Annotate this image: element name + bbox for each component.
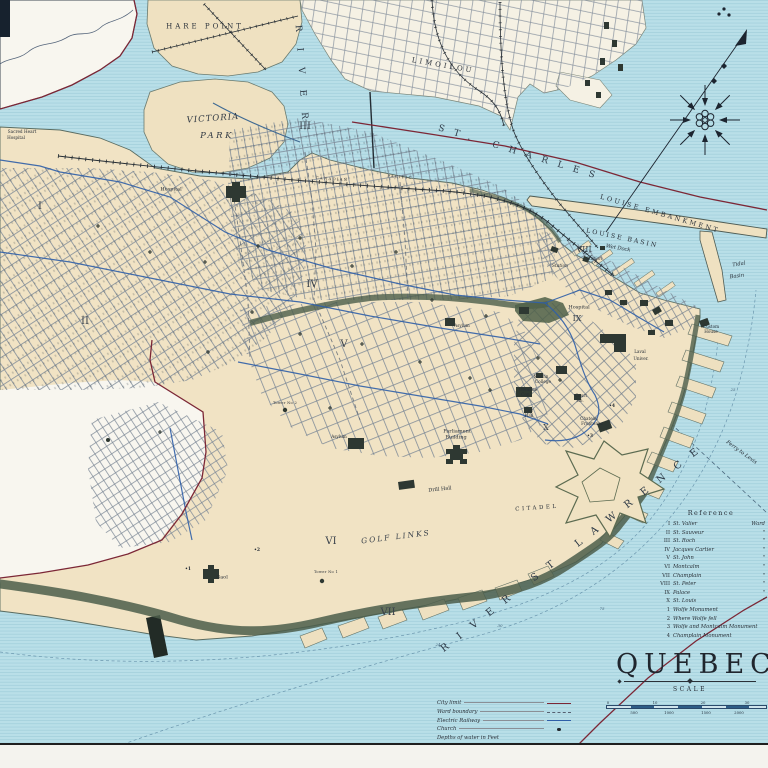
legend-item-electric-railway: Electric Railway bbox=[437, 716, 571, 725]
scale-tick: 0 bbox=[607, 700, 609, 705]
reference-item-monument-1: 1Wolfe Monument bbox=[655, 607, 767, 616]
scale-label: SCALE bbox=[610, 686, 768, 693]
scale-bar: 0 10 20 30 500 1000 1500 2000 bbox=[606, 700, 767, 716]
scale-tick: 10 bbox=[653, 700, 658, 705]
reference-item-ward-VII: VIIChamplain" bbox=[655, 573, 767, 582]
reference-item-ward-X: XSt. Louis" bbox=[655, 598, 767, 607]
paper-margin bbox=[0, 745, 768, 768]
reference-item-monument-2: 2Where Wolfe fell bbox=[655, 616, 767, 625]
scale-tick: 500 bbox=[630, 710, 637, 715]
asylum-east-building bbox=[445, 318, 455, 326]
reference-item-ward-IX: IXPalace" bbox=[655, 590, 767, 599]
corner-bar bbox=[0, 0, 10, 37]
title-flourish-icon bbox=[624, 681, 756, 682]
reference-item-monument-3: 3Wolfe and Montcalm Monument bbox=[655, 624, 767, 633]
scale-tick: 2000 bbox=[734, 710, 744, 715]
title-block: QUEBEC SCALE bbox=[610, 651, 768, 693]
scale-tick: 20 bbox=[701, 700, 706, 705]
city-limit-swatch bbox=[547, 701, 571, 706]
scale-tick: 1500 bbox=[701, 710, 711, 715]
legend-item-depths: Depths of water in Feet bbox=[437, 734, 571, 743]
reference-item-ward-V: VSt. John" bbox=[655, 555, 767, 564]
scale-tick: 1000 bbox=[664, 710, 674, 715]
legend-item-church: Church bbox=[437, 725, 571, 734]
map-title: QUEBEC bbox=[610, 651, 768, 678]
ward-boundary-swatch bbox=[547, 710, 571, 715]
reference-item-monument-4: 4Champlain Monument bbox=[655, 633, 767, 642]
quebec-map: HARE POINTVICTORIAPARKRIVERST. CHARLESRI… bbox=[0, 0, 768, 768]
reference-item-ward-I: ISt. ValierWard bbox=[655, 521, 767, 530]
reference-item-ward-VI: VIMontcalm" bbox=[655, 564, 767, 573]
electric-railway-swatch bbox=[547, 718, 571, 723]
reference-item-ward-IV: IVJacques Cartier" bbox=[655, 547, 767, 556]
reference-item-ward-II: IISt. Sauveur" bbox=[655, 530, 767, 539]
reference-heading: Reference bbox=[655, 509, 767, 517]
legend-item-city-limit: City limit bbox=[437, 699, 571, 708]
asylum-west-building bbox=[348, 438, 364, 449]
church-swatch bbox=[547, 727, 571, 732]
legend-item-ward-boundary: Ward boundary bbox=[437, 708, 571, 717]
reference-item-ward-VIII: VIIISt. Peter" bbox=[655, 581, 767, 590]
reference-rows: ISt. ValierWardIISt. Sauveur"IIISt. Roch… bbox=[655, 521, 767, 641]
reference-item-ward-III: IIISt. Roch" bbox=[655, 538, 767, 547]
scale-tick: 30 bbox=[745, 700, 750, 705]
symbol-legend: City limit Ward boundary Electric Railwa… bbox=[437, 699, 571, 742]
reference-legend: Reference ISt. ValierWardIISt. Sauveur"I… bbox=[655, 509, 767, 641]
